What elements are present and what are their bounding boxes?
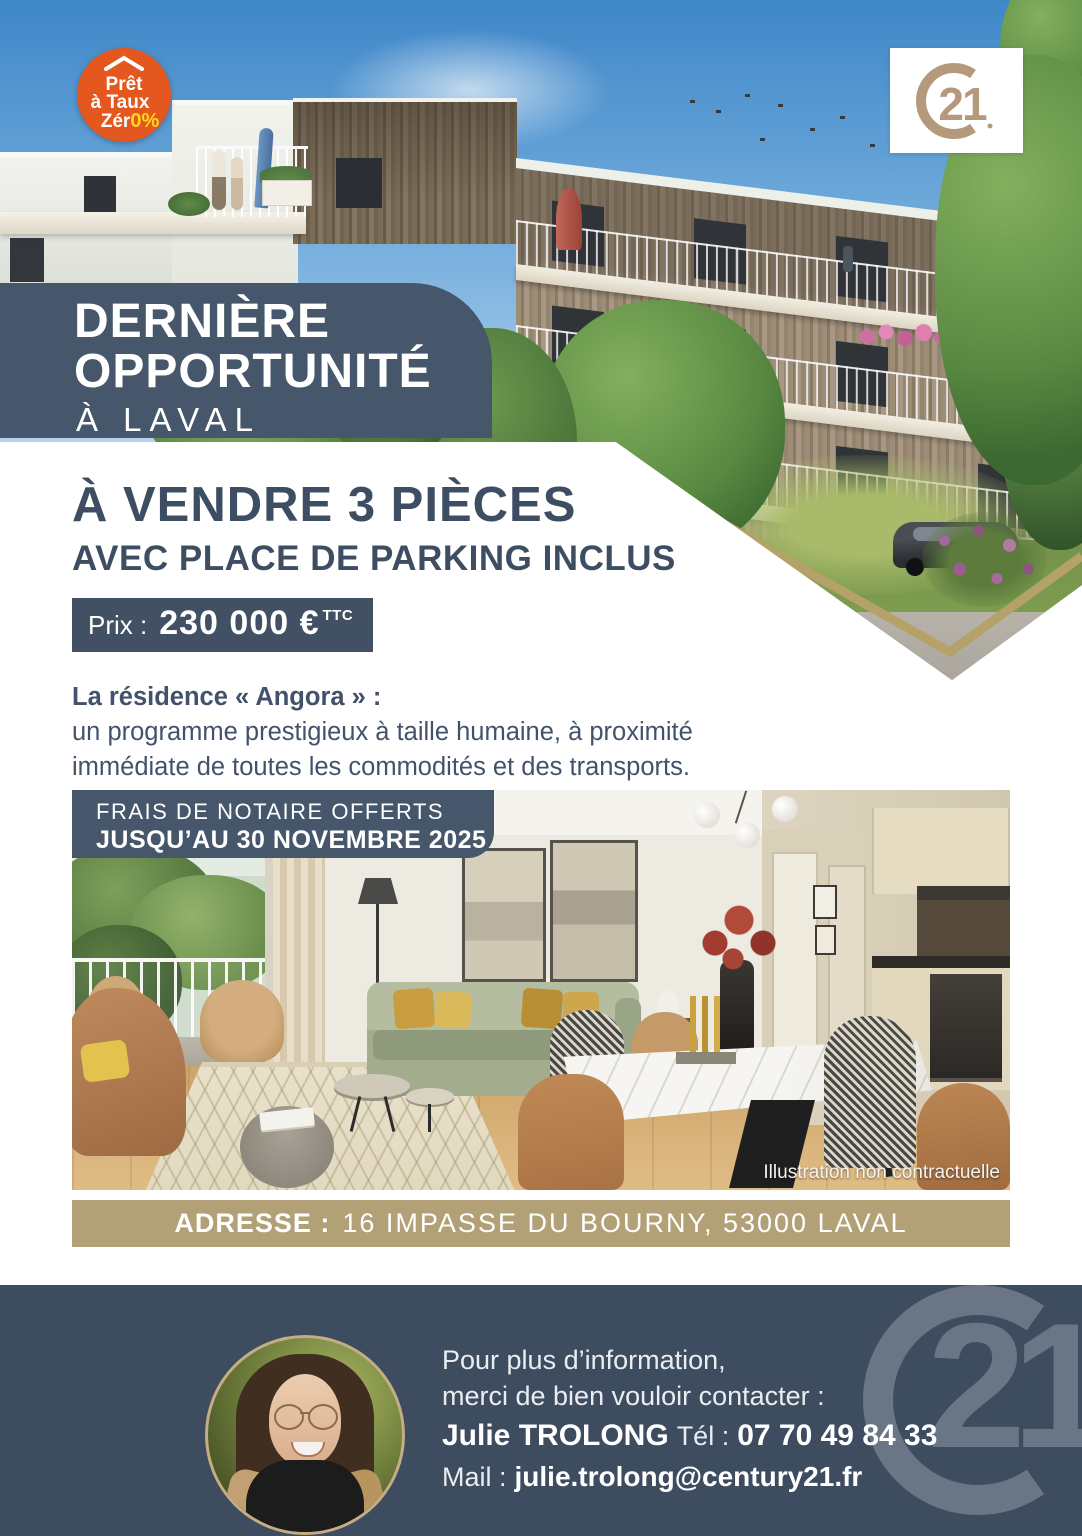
- table-leg: [428, 1104, 431, 1132]
- flyer-page: Prêt à Taux Zér0% 21 DERNIÈRE OPPORTUNIT…: [0, 0, 1082, 1536]
- description-line1: un programme prestigieux à taille humain…: [72, 715, 693, 750]
- wall-picture: [815, 925, 836, 955]
- interior-photo: FRAIS DE NOTAIRE OFFERTS JUSQU’AU 30 NOV…: [72, 790, 1010, 1190]
- notary-promo-banner: FRAIS DE NOTAIRE OFFERTS JUSQU’AU 30 NOV…: [72, 790, 494, 858]
- wall-picture: [813, 885, 837, 919]
- price-label: Prix :: [88, 610, 147, 641]
- portrait-turtleneck: [246, 1460, 364, 1535]
- leather-chair: [518, 1074, 624, 1190]
- range-hood: [917, 886, 1010, 900]
- oven: [930, 974, 1002, 1082]
- mail-label: Mail :: [442, 1462, 507, 1493]
- wall-art: [550, 840, 638, 982]
- ptz-zero-percent: 0%: [130, 110, 159, 132]
- glasses-icon: [274, 1404, 304, 1430]
- contact-mail-line: Mail : julie.trolong@century21.fr: [442, 1461, 862, 1493]
- floor-lamp-shade: [358, 878, 398, 904]
- description: La résidence « Angora » : un programme p…: [72, 680, 693, 785]
- opportunity-ribbon: DERNIÈRE OPPORTUNITÉ À LAVAL: [0, 283, 492, 438]
- red-dried-flowers: [687, 892, 787, 980]
- kitchen-upper-cabinets: [872, 808, 1010, 894]
- address-label: ADRESSE :: [174, 1208, 330, 1239]
- cushion: [80, 1039, 131, 1083]
- rattan-chair: [200, 980, 284, 1062]
- svg-text:21: 21: [938, 78, 987, 130]
- century21-logo: 21: [890, 48, 1023, 153]
- sculpture-base: [676, 1052, 736, 1064]
- coffee-table: [334, 1074, 410, 1098]
- svg-text:21: 21: [927, 1286, 1082, 1485]
- description-intro: La résidence « Angora » :: [72, 680, 693, 715]
- ribbon-line3: À LAVAL: [76, 401, 261, 439]
- gold-sculpture: [684, 996, 728, 1056]
- houndstooth-chair: [824, 1016, 916, 1168]
- tel-label: Tél :: [677, 1421, 730, 1452]
- century21-logo-icon: 21: [890, 48, 1023, 153]
- kitchen-counter: [872, 956, 1010, 968]
- cushion: [434, 991, 472, 1029]
- cushion: [393, 988, 436, 1030]
- agent-portrait: [205, 1335, 405, 1535]
- ptz-badge: Prêt à Taux Zér0%: [77, 48, 171, 142]
- contact-phone-line: Julie TROLONG Tél : 07 70 49 84 33: [442, 1419, 937, 1453]
- footer: 21 Pour plus d’information, merci de bie…: [0, 1285, 1082, 1536]
- price-suffix: TTC: [323, 607, 354, 624]
- listing-subtitle: AVEC PLACE DE PARKING INCLUS: [72, 539, 676, 579]
- address-value: 16 IMPASSE DU BOURNY, 53000 LAVAL: [342, 1208, 907, 1239]
- pendant-light: [772, 796, 798, 822]
- price-bar: Prix : 230 000 € TTC: [72, 598, 373, 652]
- agent-name: Julie TROLONG: [442, 1419, 669, 1453]
- glasses-bridge: [300, 1412, 309, 1414]
- tel-number: 07 70 49 84 33: [737, 1419, 937, 1453]
- contact-info-line2: merci de bien vouloir contacter :: [442, 1381, 825, 1412]
- mail-address: julie.trolong@century21.fr: [515, 1461, 863, 1493]
- pendant-light: [734, 822, 760, 848]
- promo-line1: FRAIS DE NOTAIRE OFFERTS: [96, 799, 494, 825]
- address-bar: ADRESSE : 16 IMPASSE DU BOURNY, 53000 LA…: [72, 1200, 1010, 1247]
- pendant-light: [694, 802, 720, 828]
- kitchen-backsplash: [917, 900, 1010, 958]
- ptz-line3: Zér0%: [89, 112, 171, 131]
- roof-icon: [102, 55, 146, 71]
- ribbon-line2: OPPORTUNITÉ: [74, 346, 432, 398]
- listing-title: À VENDRE 3 PIÈCES: [72, 477, 576, 533]
- coffee-table: [406, 1088, 454, 1105]
- wall-art: [462, 848, 546, 982]
- contact-info-line1: Pour plus d’information,: [442, 1345, 726, 1376]
- photo-caption: Illustration non contractuelle: [763, 1162, 1000, 1184]
- description-line2: immédiate de toutes les commodités et de…: [72, 750, 693, 785]
- promo-line2: JUSQU’AU 30 NOVEMBRE 2025: [96, 825, 494, 855]
- price-value: 230 000 €: [159, 604, 319, 643]
- ribbon-line1: DERNIÈRE: [74, 296, 330, 348]
- glasses-icon: [308, 1404, 338, 1430]
